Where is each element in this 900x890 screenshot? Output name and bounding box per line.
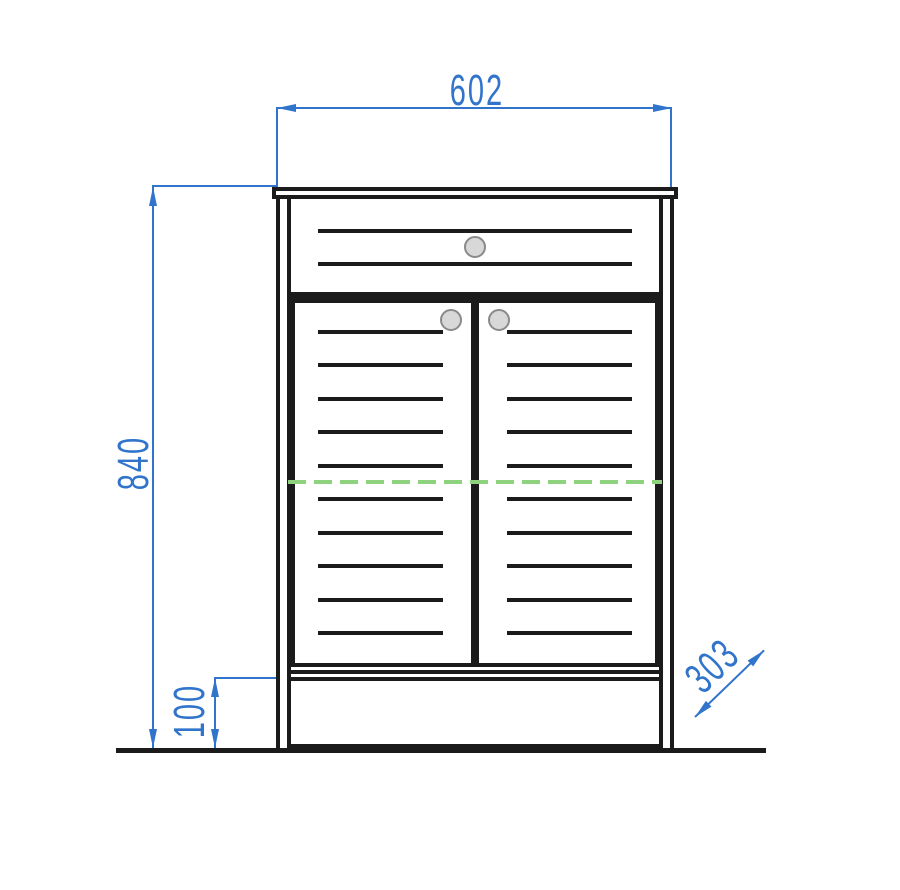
dim-depth-arrow-far <box>748 647 767 666</box>
left-door-slat <box>318 397 443 401</box>
left-door-slat <box>318 564 443 568</box>
cabinet-countertop <box>272 187 678 199</box>
right-door-slat <box>507 464 632 468</box>
right-door-slat <box>507 397 632 401</box>
right-door-slat <box>507 531 632 535</box>
left-door-slat <box>318 631 443 635</box>
ground-line <box>116 748 766 753</box>
dim-depth-group: 303 <box>695 650 764 717</box>
dim-depth-label: 303 <box>678 632 748 701</box>
drawer-slat <box>318 229 632 233</box>
drawer-slat <box>318 262 632 266</box>
right-door-knob <box>488 309 510 331</box>
dim-plinth-label: 100 <box>168 684 212 738</box>
dim-width-ext-right <box>670 107 672 187</box>
left-door-slat <box>318 497 443 501</box>
left-door-slat <box>318 363 443 367</box>
left-door-slat <box>318 430 443 434</box>
cabinet-right-side-panel <box>659 199 674 748</box>
right-door-slat <box>507 631 632 635</box>
drawer-knob <box>464 236 486 258</box>
left-door-slat <box>318 598 443 602</box>
right-door-slat <box>507 430 632 434</box>
left-door-knob <box>440 309 462 331</box>
dim-width-label: 602 <box>450 69 504 113</box>
left-door-slat <box>318 531 443 535</box>
dim-height-arrow-bottom <box>149 729 157 748</box>
dim-height-arrow-top <box>149 187 157 206</box>
centerline-dashed <box>288 480 662 484</box>
dim-height-ext-top <box>152 185 278 187</box>
right-door-slat <box>507 497 632 501</box>
cabinet-bottom-rail <box>291 670 659 674</box>
right-door-slat <box>507 598 632 602</box>
left-door-slat <box>318 330 443 334</box>
cabinet-left-side-panel <box>276 199 291 748</box>
cabinet-technical-drawing: 602 840 100 303 <box>0 0 900 890</box>
dim-plinth-ext <box>214 677 280 679</box>
dim-width-ext-left <box>276 107 278 187</box>
dim-height-label: 840 <box>112 436 156 490</box>
right-door-slat <box>507 330 632 334</box>
right-door-slat <box>507 363 632 367</box>
cabinet-plinth <box>291 677 659 748</box>
dim-width-arrow-right <box>653 104 672 112</box>
drawer-door-divider <box>291 292 659 299</box>
left-door-slat <box>318 464 443 468</box>
dim-width-arrow-left <box>277 104 296 112</box>
dim-depth-arrow-near <box>692 701 711 720</box>
right-door-slat <box>507 564 632 568</box>
